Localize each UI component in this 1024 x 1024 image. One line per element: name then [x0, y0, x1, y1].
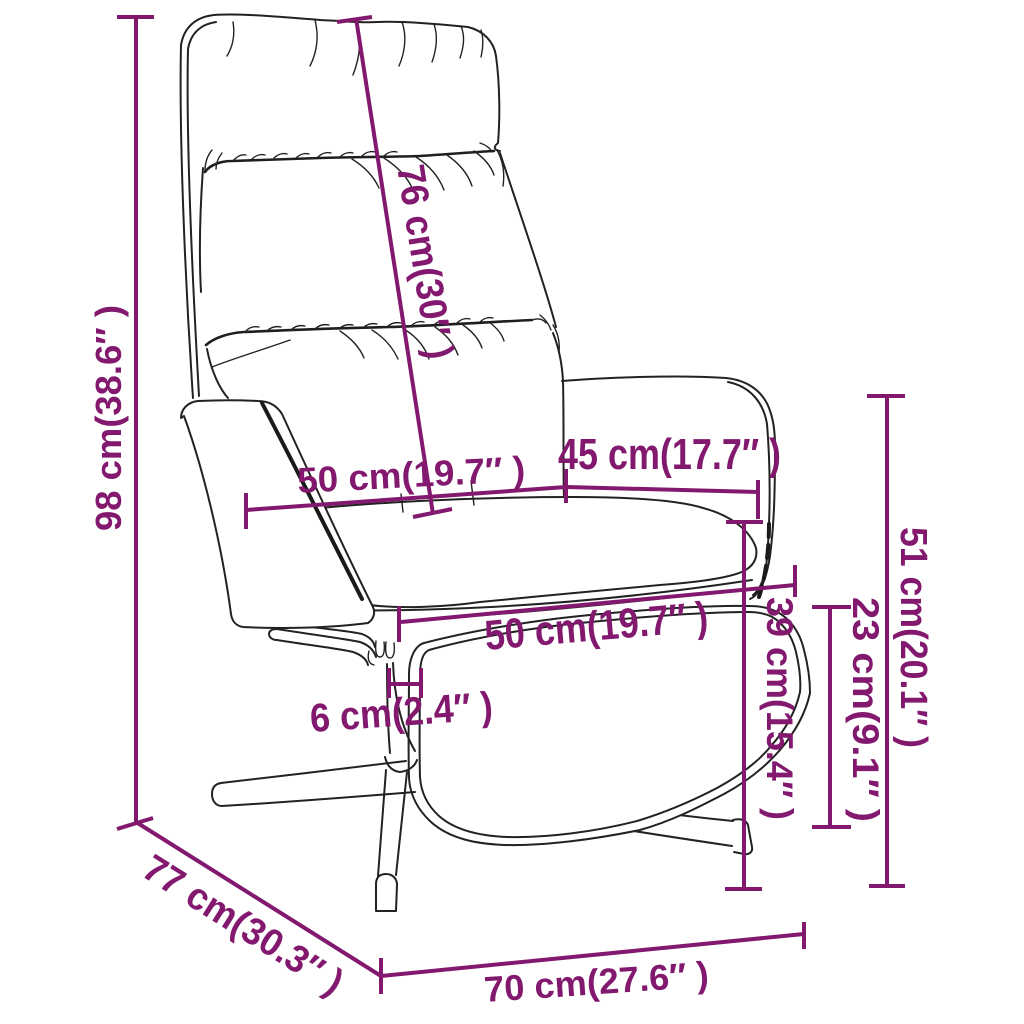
svg-text:51 cm(20.1″ ): 51 cm(20.1″ ): [892, 527, 934, 748]
svg-text:23 cm(9.1″ ): 23 cm(9.1″ ): [845, 597, 886, 822]
svg-text:39 cm(15.4″ ): 39 cm(15.4″ ): [759, 597, 800, 820]
svg-text:45 cm(17.7″ ): 45 cm(17.7″ ): [558, 430, 781, 479]
svg-text:98 cm(38.6″ ): 98 cm(38.6″ ): [88, 305, 129, 531]
